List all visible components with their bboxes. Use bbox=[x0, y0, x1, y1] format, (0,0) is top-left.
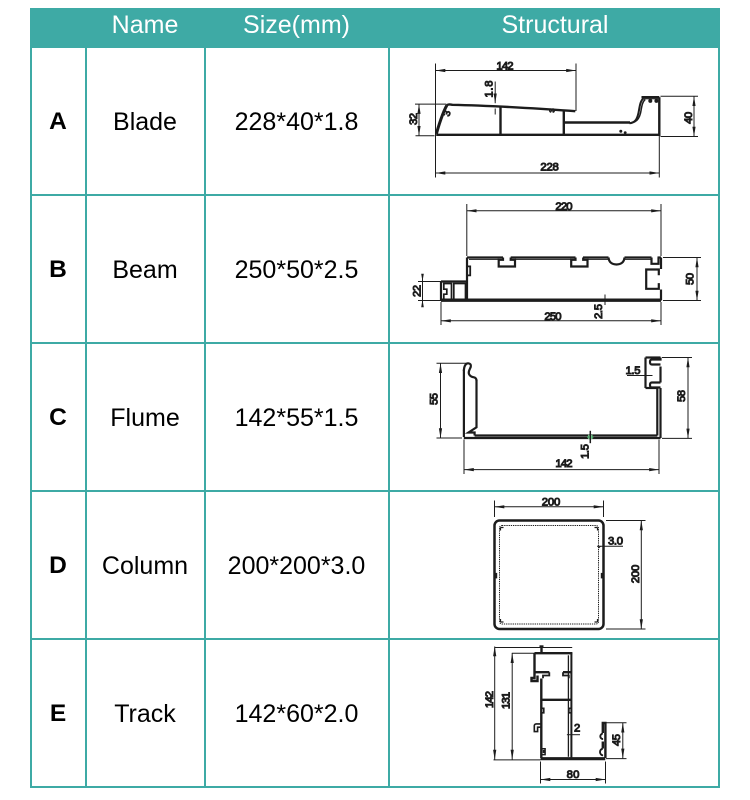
svg-text:131: 131 bbox=[501, 692, 513, 709]
svg-text:50: 50 bbox=[685, 273, 697, 285]
svg-text:3.0: 3.0 bbox=[608, 536, 623, 548]
svg-text:142: 142 bbox=[484, 691, 496, 708]
svg-text:200: 200 bbox=[630, 565, 642, 584]
svg-text:80: 80 bbox=[567, 769, 580, 781]
svg-text:250: 250 bbox=[544, 311, 561, 323]
svg-text:55: 55 bbox=[429, 393, 441, 405]
svg-text:45: 45 bbox=[611, 734, 623, 746]
svg-text:58: 58 bbox=[676, 390, 688, 402]
svg-text:22: 22 bbox=[411, 285, 423, 297]
svg-text:228: 228 bbox=[540, 162, 559, 174]
svg-text:2: 2 bbox=[574, 723, 580, 735]
svg-text:1.8: 1.8 bbox=[483, 80, 495, 97]
svg-text:220: 220 bbox=[555, 201, 572, 213]
svg-text:40: 40 bbox=[683, 112, 695, 124]
svg-text:142: 142 bbox=[555, 458, 572, 470]
svg-text:2.5: 2.5 bbox=[593, 304, 605, 319]
svg-text:1.5: 1.5 bbox=[626, 365, 641, 377]
svg-text:3: 3 bbox=[547, 108, 556, 112]
svg-text:142: 142 bbox=[496, 61, 513, 73]
svg-text:32: 32 bbox=[408, 113, 420, 125]
svg-text:1.5: 1.5 bbox=[580, 444, 592, 459]
svg-text:200: 200 bbox=[542, 497, 561, 509]
